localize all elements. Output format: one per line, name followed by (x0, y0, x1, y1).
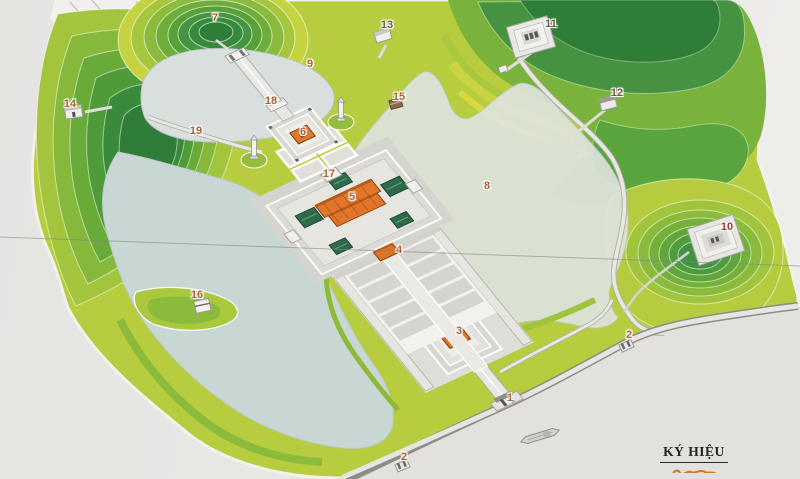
legend-first-item-partial (648, 463, 740, 473)
legend: KÝ HIỆU (648, 443, 740, 473)
terrain-svg (0, 0, 800, 479)
site-model-photo: 713119121518141961785104163212 KÝ HIỆU (0, 0, 800, 479)
building-14 (64, 105, 83, 119)
building-16 (194, 298, 211, 313)
legend-title: KÝ HIỆU (660, 444, 728, 463)
